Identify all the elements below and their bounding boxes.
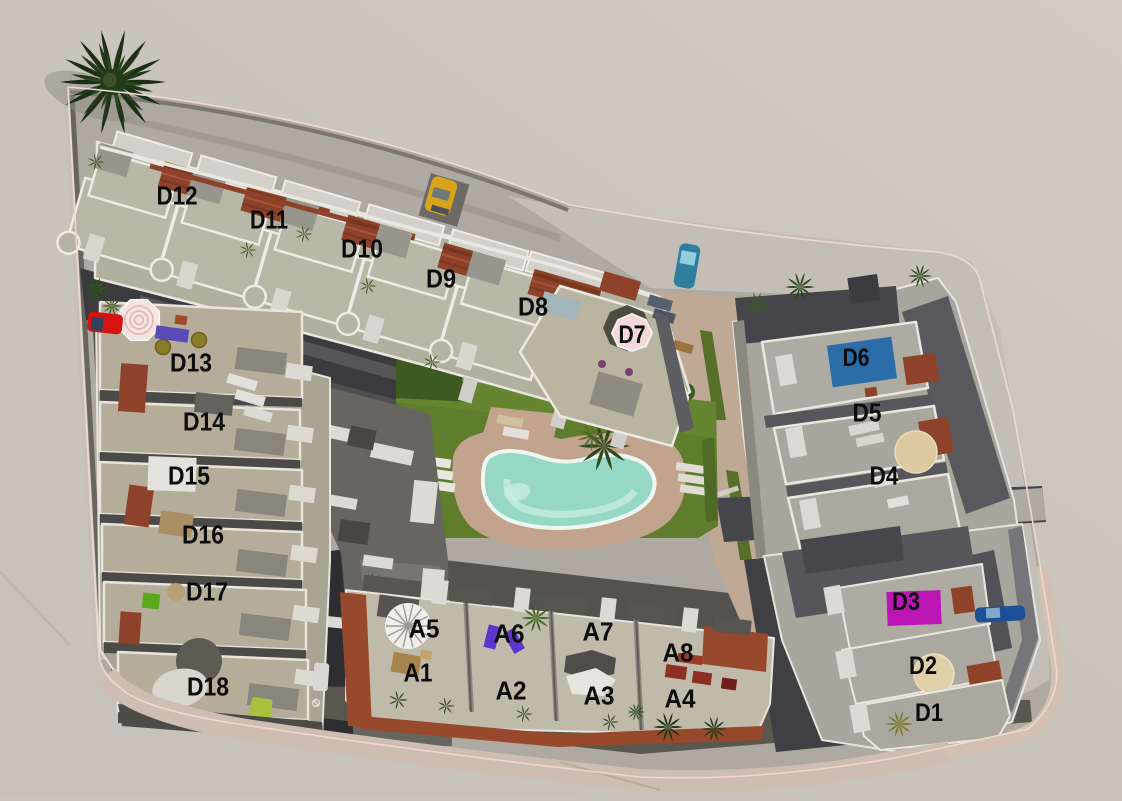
svg-text:A5: A5 [409,613,440,643]
svg-text:D5: D5 [853,397,882,427]
svg-text:D8: D8 [518,291,548,321]
svg-text:D12: D12 [157,180,198,210]
svg-text:A8: A8 [663,637,694,667]
svg-text:D16: D16 [182,519,224,549]
svg-text:D18: D18 [187,671,229,701]
svg-text:A6: A6 [494,618,525,648]
svg-text:D17: D17 [186,576,228,606]
svg-text:D11: D11 [250,204,288,234]
svg-text:A1: A1 [404,657,433,687]
svg-text:A4: A4 [665,683,696,713]
svg-text:D2: D2 [909,652,937,680]
svg-text:D15: D15 [168,460,210,490]
svg-text:D14: D14 [183,406,225,436]
svg-text:A2: A2 [496,675,527,705]
svg-text:D9: D9 [426,263,456,293]
svg-text:D4: D4 [870,460,899,490]
svg-text:D7: D7 [619,321,646,349]
svg-text:D1: D1 [915,699,943,727]
svg-text:D10: D10 [341,233,383,263]
svg-text:A3: A3 [584,680,615,710]
svg-text:D6: D6 [843,344,870,372]
svg-text:D3: D3 [892,588,920,616]
svg-text:A7: A7 [583,616,614,646]
svg-text:D13: D13 [170,347,212,377]
